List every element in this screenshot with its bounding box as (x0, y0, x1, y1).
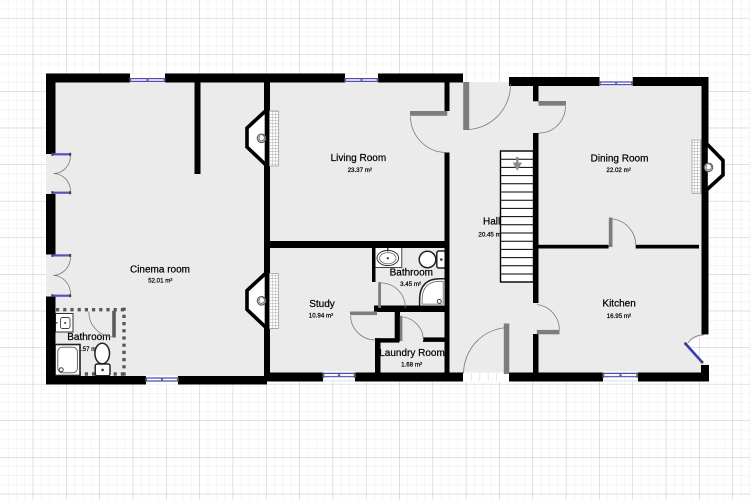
svg-text:Bathroom: Bathroom (67, 332, 110, 343)
svg-text:Living Room: Living Room (331, 153, 387, 164)
svg-text:3.45 m²: 3.45 m² (400, 281, 421, 288)
svg-text:10.94 m²: 10.94 m² (309, 312, 333, 319)
svg-text:Cinema room: Cinema room (130, 265, 190, 276)
svg-text:22.02 m²: 22.02 m² (606, 167, 630, 174)
svg-text:Study: Study (309, 299, 335, 310)
svg-text:Laundry Room: Laundry Room (379, 348, 445, 359)
svg-text:1.68 m²: 1.68 m² (401, 362, 422, 369)
svg-text:Bathroom: Bathroom (390, 268, 433, 279)
svg-text:23.37 m²: 23.37 m² (348, 167, 372, 174)
svg-text:20.45 m²: 20.45 m² (478, 232, 502, 239)
svg-text:Kitchen: Kitchen (602, 299, 635, 310)
svg-text:Dining Room: Dining Room (591, 153, 649, 164)
svg-text:16.95 m²: 16.95 m² (607, 313, 631, 320)
svg-text:Hall: Hall (483, 217, 500, 228)
svg-text:52.01 m²: 52.01 m² (148, 277, 172, 284)
